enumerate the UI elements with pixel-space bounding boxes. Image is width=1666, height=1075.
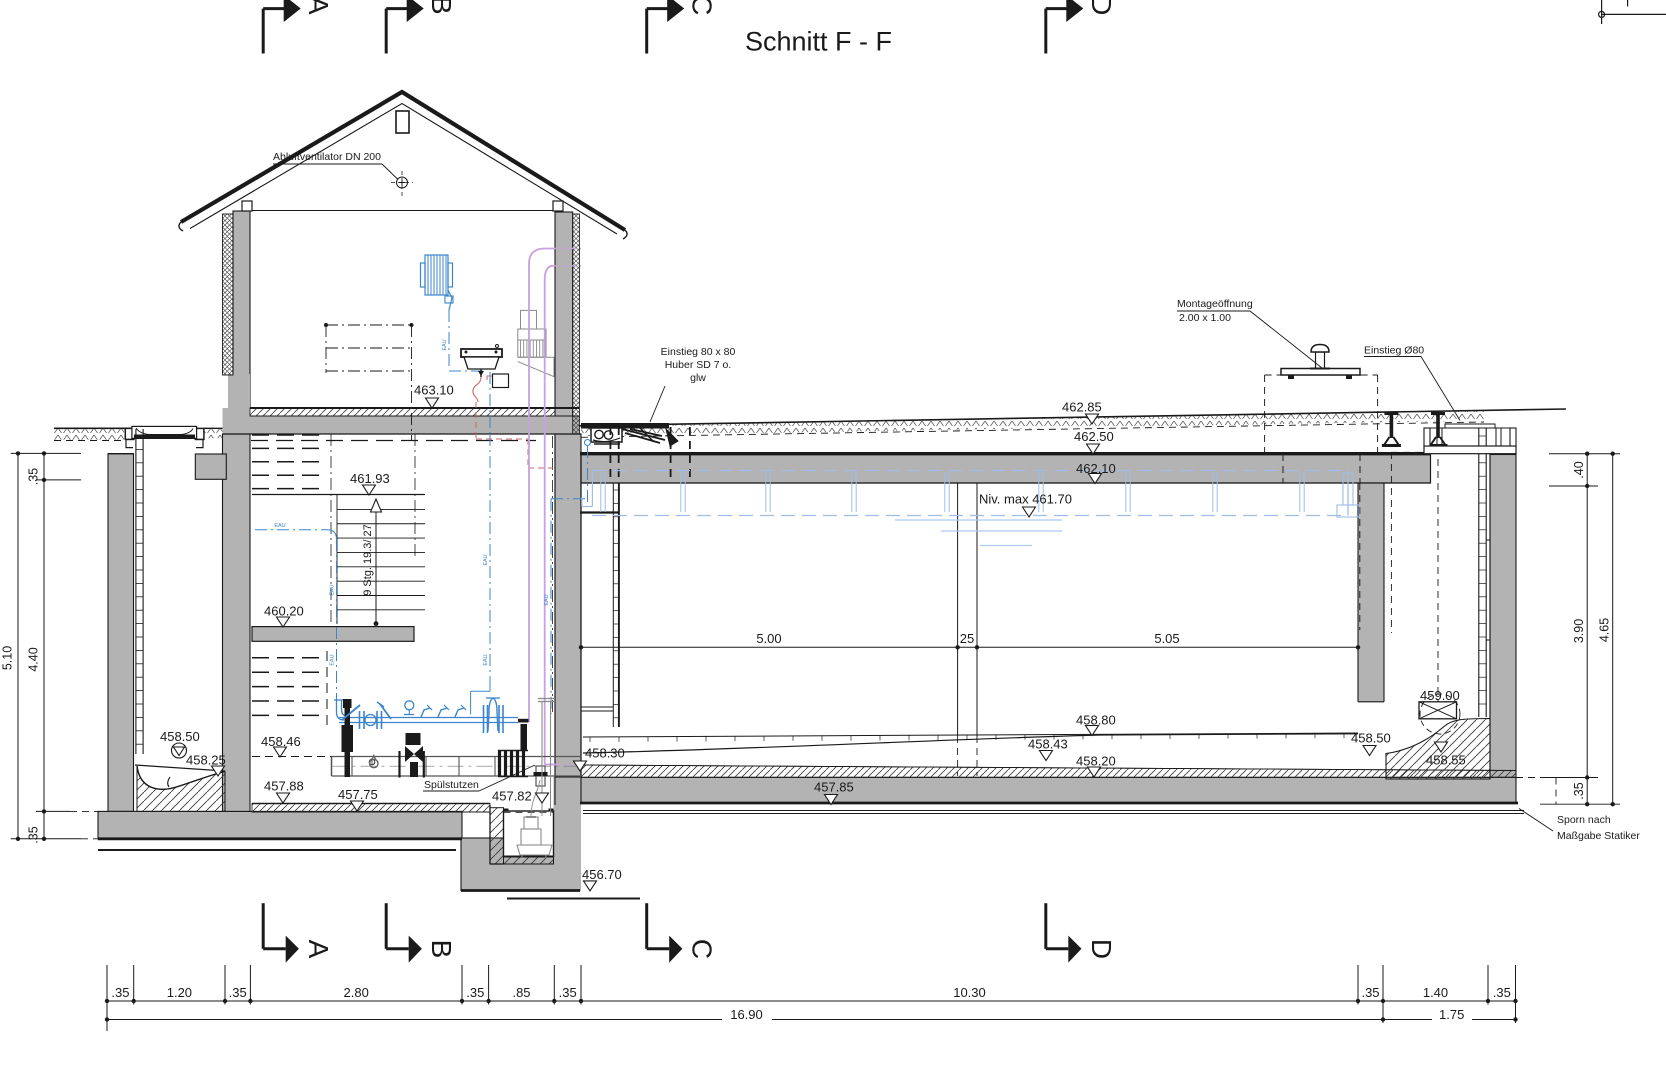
svg-text:Niv. max 461.70: Niv. max 461.70 (979, 492, 1072, 507)
svg-text:458.50: 458.50 (1351, 731, 1391, 746)
svg-text:C: C (687, 939, 718, 959)
svg-text:16.90: 16.90 (730, 1007, 763, 1022)
svg-text:EAU: EAU (274, 523, 285, 529)
svg-text:458.20: 458.20 (1076, 754, 1116, 769)
svg-text:.35: .35 (1493, 985, 1511, 1000)
svg-text:462.50: 462.50 (1074, 429, 1114, 444)
svg-text:456.70: 456.70 (582, 867, 622, 882)
svg-text:2.00 x 1.00: 2.00 x 1.00 (1179, 312, 1231, 324)
svg-text:1.40: 1.40 (1423, 985, 1448, 1000)
svg-text:C: C (687, 0, 718, 15)
svg-text:B: B (426, 940, 457, 959)
svg-text:25: 25 (960, 631, 974, 646)
svg-text:Montageöffnung: Montageöffnung (1177, 298, 1253, 310)
svg-text:3.90: 3.90 (1572, 619, 1586, 643)
svg-text:1.75: 1.75 (1439, 1007, 1464, 1022)
svg-text:5.10: 5.10 (1, 646, 15, 670)
svg-text:.40: .40 (1572, 461, 1586, 478)
svg-text:457.82: 457.82 (492, 789, 532, 804)
svg-text:463.10: 463.10 (414, 383, 454, 398)
svg-text:Einstieg 80 x 80: Einstieg 80 x 80 (661, 346, 736, 358)
svg-text:.35: .35 (229, 985, 247, 1000)
svg-text:458.43: 458.43 (1028, 737, 1068, 752)
svg-text:EAU: EAU (330, 654, 336, 665)
svg-text:460.20: 460.20 (264, 604, 304, 619)
svg-text:Spülstutzen: Spülstutzen (424, 779, 479, 791)
svg-text:5.00: 5.00 (756, 631, 781, 646)
svg-text:A: A (303, 940, 334, 959)
svg-text:A: A (303, 0, 334, 15)
svg-text:EAU: EAU (544, 594, 550, 605)
svg-text:.35: .35 (1572, 782, 1586, 799)
svg-text:.85: .85 (512, 985, 530, 1000)
svg-text:.35: .35 (559, 985, 577, 1000)
svg-text:10.30: 10.30 (953, 985, 986, 1000)
svg-text:4.65: 4.65 (1598, 618, 1612, 642)
svg-text:EAU: EAU (330, 584, 336, 595)
svg-text:458.25: 458.25 (186, 753, 226, 768)
svg-text:D: D (1086, 939, 1117, 959)
svg-text:459.00: 459.00 (1420, 688, 1460, 703)
svg-text:Maßgabe Statiker: Maßgabe Statiker (1557, 830, 1640, 842)
svg-text:Sporn nach: Sporn nach (1557, 814, 1611, 826)
svg-text:458.55: 458.55 (1426, 753, 1466, 768)
svg-text:457.85: 457.85 (814, 780, 854, 795)
svg-text:9 Stg. 19.3/ 27: 9 Stg. 19.3/ 27 (362, 524, 374, 596)
svg-text:Schnitt F - F: Schnitt F - F (745, 27, 892, 57)
svg-text:.35: .35 (111, 985, 129, 1000)
svg-text:.35: .35 (466, 985, 484, 1000)
svg-text:5.05: 5.05 (1154, 631, 1179, 646)
svg-text:.35: .35 (1361, 985, 1379, 1000)
svg-text:2.80: 2.80 (344, 985, 369, 1000)
svg-text:457.75: 457.75 (338, 787, 378, 802)
svg-text:EAU: EAU (483, 554, 489, 565)
svg-text:Abluftventilator DN 200: Abluftventilator DN 200 (273, 151, 381, 163)
svg-text:EAU: EAU (483, 654, 489, 665)
svg-text:.35: .35 (27, 468, 41, 485)
svg-text:461.93: 461.93 (350, 471, 390, 486)
svg-text:4.40: 4.40 (27, 647, 41, 671)
svg-text:glw: glw (690, 372, 706, 384)
svg-text:EAU: EAU (442, 339, 448, 350)
svg-text:462.85: 462.85 (1062, 400, 1102, 415)
svg-text:457.88: 457.88 (264, 779, 304, 794)
svg-text:Huber SD 7 o.: Huber SD 7 o. (665, 359, 732, 371)
svg-text:B: B (426, 0, 457, 15)
svg-text:D: D (1086, 0, 1117, 15)
svg-text:Einstieg Ø80: Einstieg Ø80 (1364, 345, 1424, 357)
svg-text:.35: .35 (27, 826, 41, 843)
svg-text:458.50: 458.50 (160, 729, 200, 744)
svg-text:1.20: 1.20 (167, 985, 192, 1000)
svg-text:458.30: 458.30 (585, 746, 625, 761)
